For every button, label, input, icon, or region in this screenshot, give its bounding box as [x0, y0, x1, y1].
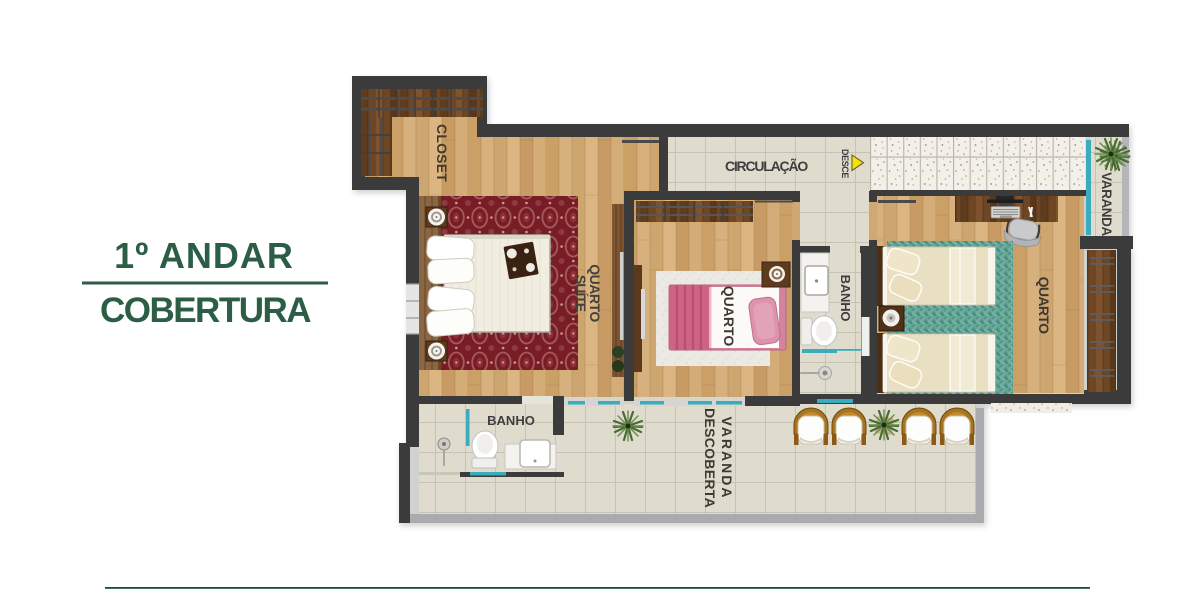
svg-text:COBERTURA: COBERTURA	[100, 291, 311, 330]
svg-text:QUARTO: QUARTO	[1036, 277, 1052, 335]
svg-text:SUÍTE: SUÍTE	[573, 275, 589, 312]
svg-text:BANHO: BANHO	[838, 275, 853, 322]
svg-text:1º ANDAR: 1º ANDAR	[114, 235, 294, 276]
svg-text:QUARTO: QUARTO	[721, 286, 737, 347]
svg-text:CLOSET: CLOSET	[434, 124, 450, 182]
svg-text:CIRCULAÇÃO: CIRCULAÇÃO	[725, 157, 808, 174]
svg-text:DESCOBERTA: DESCOBERTA	[702, 408, 718, 508]
svg-text:BANHO: BANHO	[487, 413, 535, 428]
svg-text:VARANDA: VARANDA	[719, 417, 735, 500]
svg-text:VARANDA: VARANDA	[1099, 172, 1114, 236]
svg-text:DESCE: DESCE	[840, 149, 850, 178]
